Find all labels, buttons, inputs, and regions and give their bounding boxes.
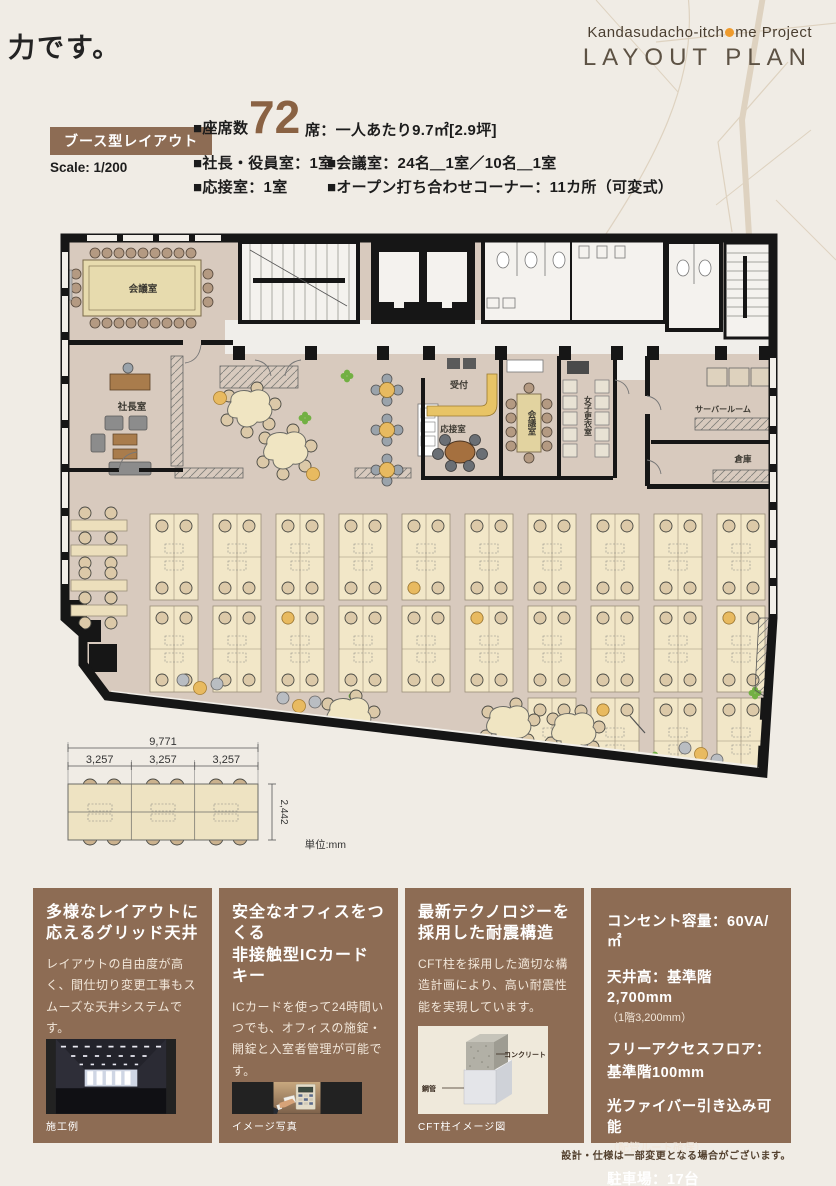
photo-caption: イメージ写真 (232, 1118, 385, 1133)
room-label-reception: 受付 (450, 379, 468, 390)
dim-segment-1: 3,257 (86, 754, 114, 766)
room-label-server: サーバールーム (695, 405, 751, 414)
room-label-storage: 倉庫 (733, 454, 752, 464)
card-title-line1: 最新テクノロジーを (418, 904, 570, 921)
card-body: CFT柱を採用した適切な構造計画により、高い耐震性能を実現しています。 (418, 954, 571, 1018)
card-title: 多様なレイアウトに応えるグリッド天井 (46, 902, 199, 945)
room-label-reception-room: 応接室 (439, 424, 466, 434)
elevators-icon (371, 242, 475, 324)
spec-parking: 駐車場：17台 (607, 1170, 775, 1186)
spec-line: 駐車場：17台 (607, 1170, 775, 1186)
spec-ceiling-height: 天井高：基準階2,700mm （1階3,200mm） (607, 968, 775, 1026)
disclaimer-footnote: 設計・仕様は一部変更となる場合がございます。 (33, 1147, 791, 1162)
dim-segment-3: 3,257 (213, 754, 241, 766)
dim-depth: 2,442 (278, 799, 289, 824)
staircase-right-icon (725, 243, 771, 338)
photo-caption: CFT柱イメージ図 (418, 1118, 571, 1133)
spec-outlet-capacity: コンセント容量：60VA/㎡ (607, 912, 775, 953)
orange-dot-icon (725, 28, 734, 37)
project-name-post: me Project (735, 24, 812, 41)
scale-label: Scale: 1/200 (50, 160, 127, 175)
feature-card-grid-ceiling: 多様なレイアウトに応えるグリッド天井 レイアウトの自由度が高く、間仕切り変更工事… (33, 888, 212, 1143)
spec-free-access-floor: フリーアクセスフロア： 基準階100mm (607, 1040, 775, 1082)
card-title-line2: 非接触型ICカードキー (232, 947, 369, 985)
dim-unit-note: 単位:mm (305, 838, 347, 851)
floor-plan: 会議室 社長室 受付 応接室 会議室 女子更衣室 サーバールーム 倉庫 (55, 228, 805, 788)
card-title-line2: 応えるグリッド天井 (46, 925, 199, 942)
label-steel-tube: 鋼管 (421, 1084, 436, 1093)
feature-cards-row: 多様なレイアウトに応えるグリッド天井 レイアウトの自由度が高く、間仕切り変更工事… (33, 888, 791, 1143)
room-label-president: 社長室 (117, 401, 147, 413)
spec-subline: （1階3,200mm） (607, 1009, 775, 1025)
page-title-fragment: 力です。 (8, 26, 121, 65)
spec-reception-room: ■応接室：1室 (193, 176, 288, 197)
card-title: 最新テクノロジーを採用した耐震構造 (418, 902, 571, 945)
cft-column-diagram: コンクリート 鋼管 (418, 1026, 548, 1114)
card-title-line2: 採用した耐震構造 (418, 925, 554, 942)
card-title-line1: 多様なレイアウトに (46, 904, 199, 921)
card-body: レイアウトの自由度が高く、間仕切り変更工事もスムーズな天井システムです。 (46, 954, 199, 1039)
ceiling-photo (46, 1039, 176, 1114)
spec-line2: 基準階100mm (607, 1061, 775, 1082)
building-specs-card: コンセント容量：60VA/㎡ 天井高：基準階2,700mm （1階3,200mm… (591, 888, 791, 1143)
seats-detail: 席：一人あたり9.7㎡[2.9坪] (305, 119, 497, 140)
brochure-page: 力です。 Kandasudacho-itchme Project LAYOUT … (0, 0, 836, 1186)
seats-label: ■座席数 (193, 117, 248, 138)
restroom-right-icon (667, 242, 721, 330)
desk-unit-drawing (68, 779, 258, 845)
spec-line: コンセント容量：60VA/㎡ (607, 912, 775, 953)
card-reader-photo (232, 1082, 362, 1114)
room-label-womens-locker: 女子更衣室 (583, 395, 593, 437)
photo-caption: 施工例 (46, 1118, 199, 1133)
room-label-conference-small: 会議室 (527, 409, 537, 436)
card-title-line1: 安全なオフィスをつくる (232, 904, 385, 942)
card-title: 安全なオフィスをつくる非接触型ICカードキー (232, 902, 385, 988)
spec-open-meeting: ■オープン打ち合わせコーナー：11カ所（可変式） (327, 176, 673, 197)
feature-card-cft-structure: 最新テクノロジーを採用した耐震構造 CFT柱を採用した適切な構造計画により、高い… (405, 888, 584, 1143)
staircase-left-icon (240, 242, 358, 322)
spec-line: フリーアクセスフロア： (607, 1040, 775, 1060)
spec-conference-room: ■会議室：24名＿1室／10名＿1室 (327, 152, 557, 173)
spec-line: 天井高：基準階2,700mm (607, 968, 775, 1009)
desk-dimension-diagram: 9,771 3,257 3,257 3,257 (50, 736, 350, 861)
label-concrete: コンクリート (504, 1050, 546, 1059)
project-name: Kandasudacho-itchme Project (587, 24, 812, 41)
spec-line: 光ファイバー引き込み可能 (607, 1097, 775, 1138)
project-name-pre: Kandasudacho-itch (587, 24, 724, 41)
card-body: ICカードを使って24時間いつでも、オフィスの施錠・開錠と入室者管理が可能です。 (232, 997, 385, 1082)
dim-total-width: 9,771 (149, 736, 177, 748)
room-label-conference-large: 会議室 (129, 283, 158, 295)
seats-value: 72 (249, 94, 300, 140)
layout-plan-title: LAYOUT PLAN (583, 44, 812, 72)
spec-president-room: ■社長・役員室：1室 (193, 152, 333, 173)
restrooms-icon (483, 240, 665, 322)
storage-room (713, 470, 771, 482)
dim-segment-2: 3,257 (149, 754, 177, 766)
feature-card-ic-card-key: 安全なオフィスをつくる非接触型ICカードキー ICカードを使って24時間いつでも… (219, 888, 398, 1143)
layout-type-tag: ブース型レイアウト (50, 127, 212, 155)
